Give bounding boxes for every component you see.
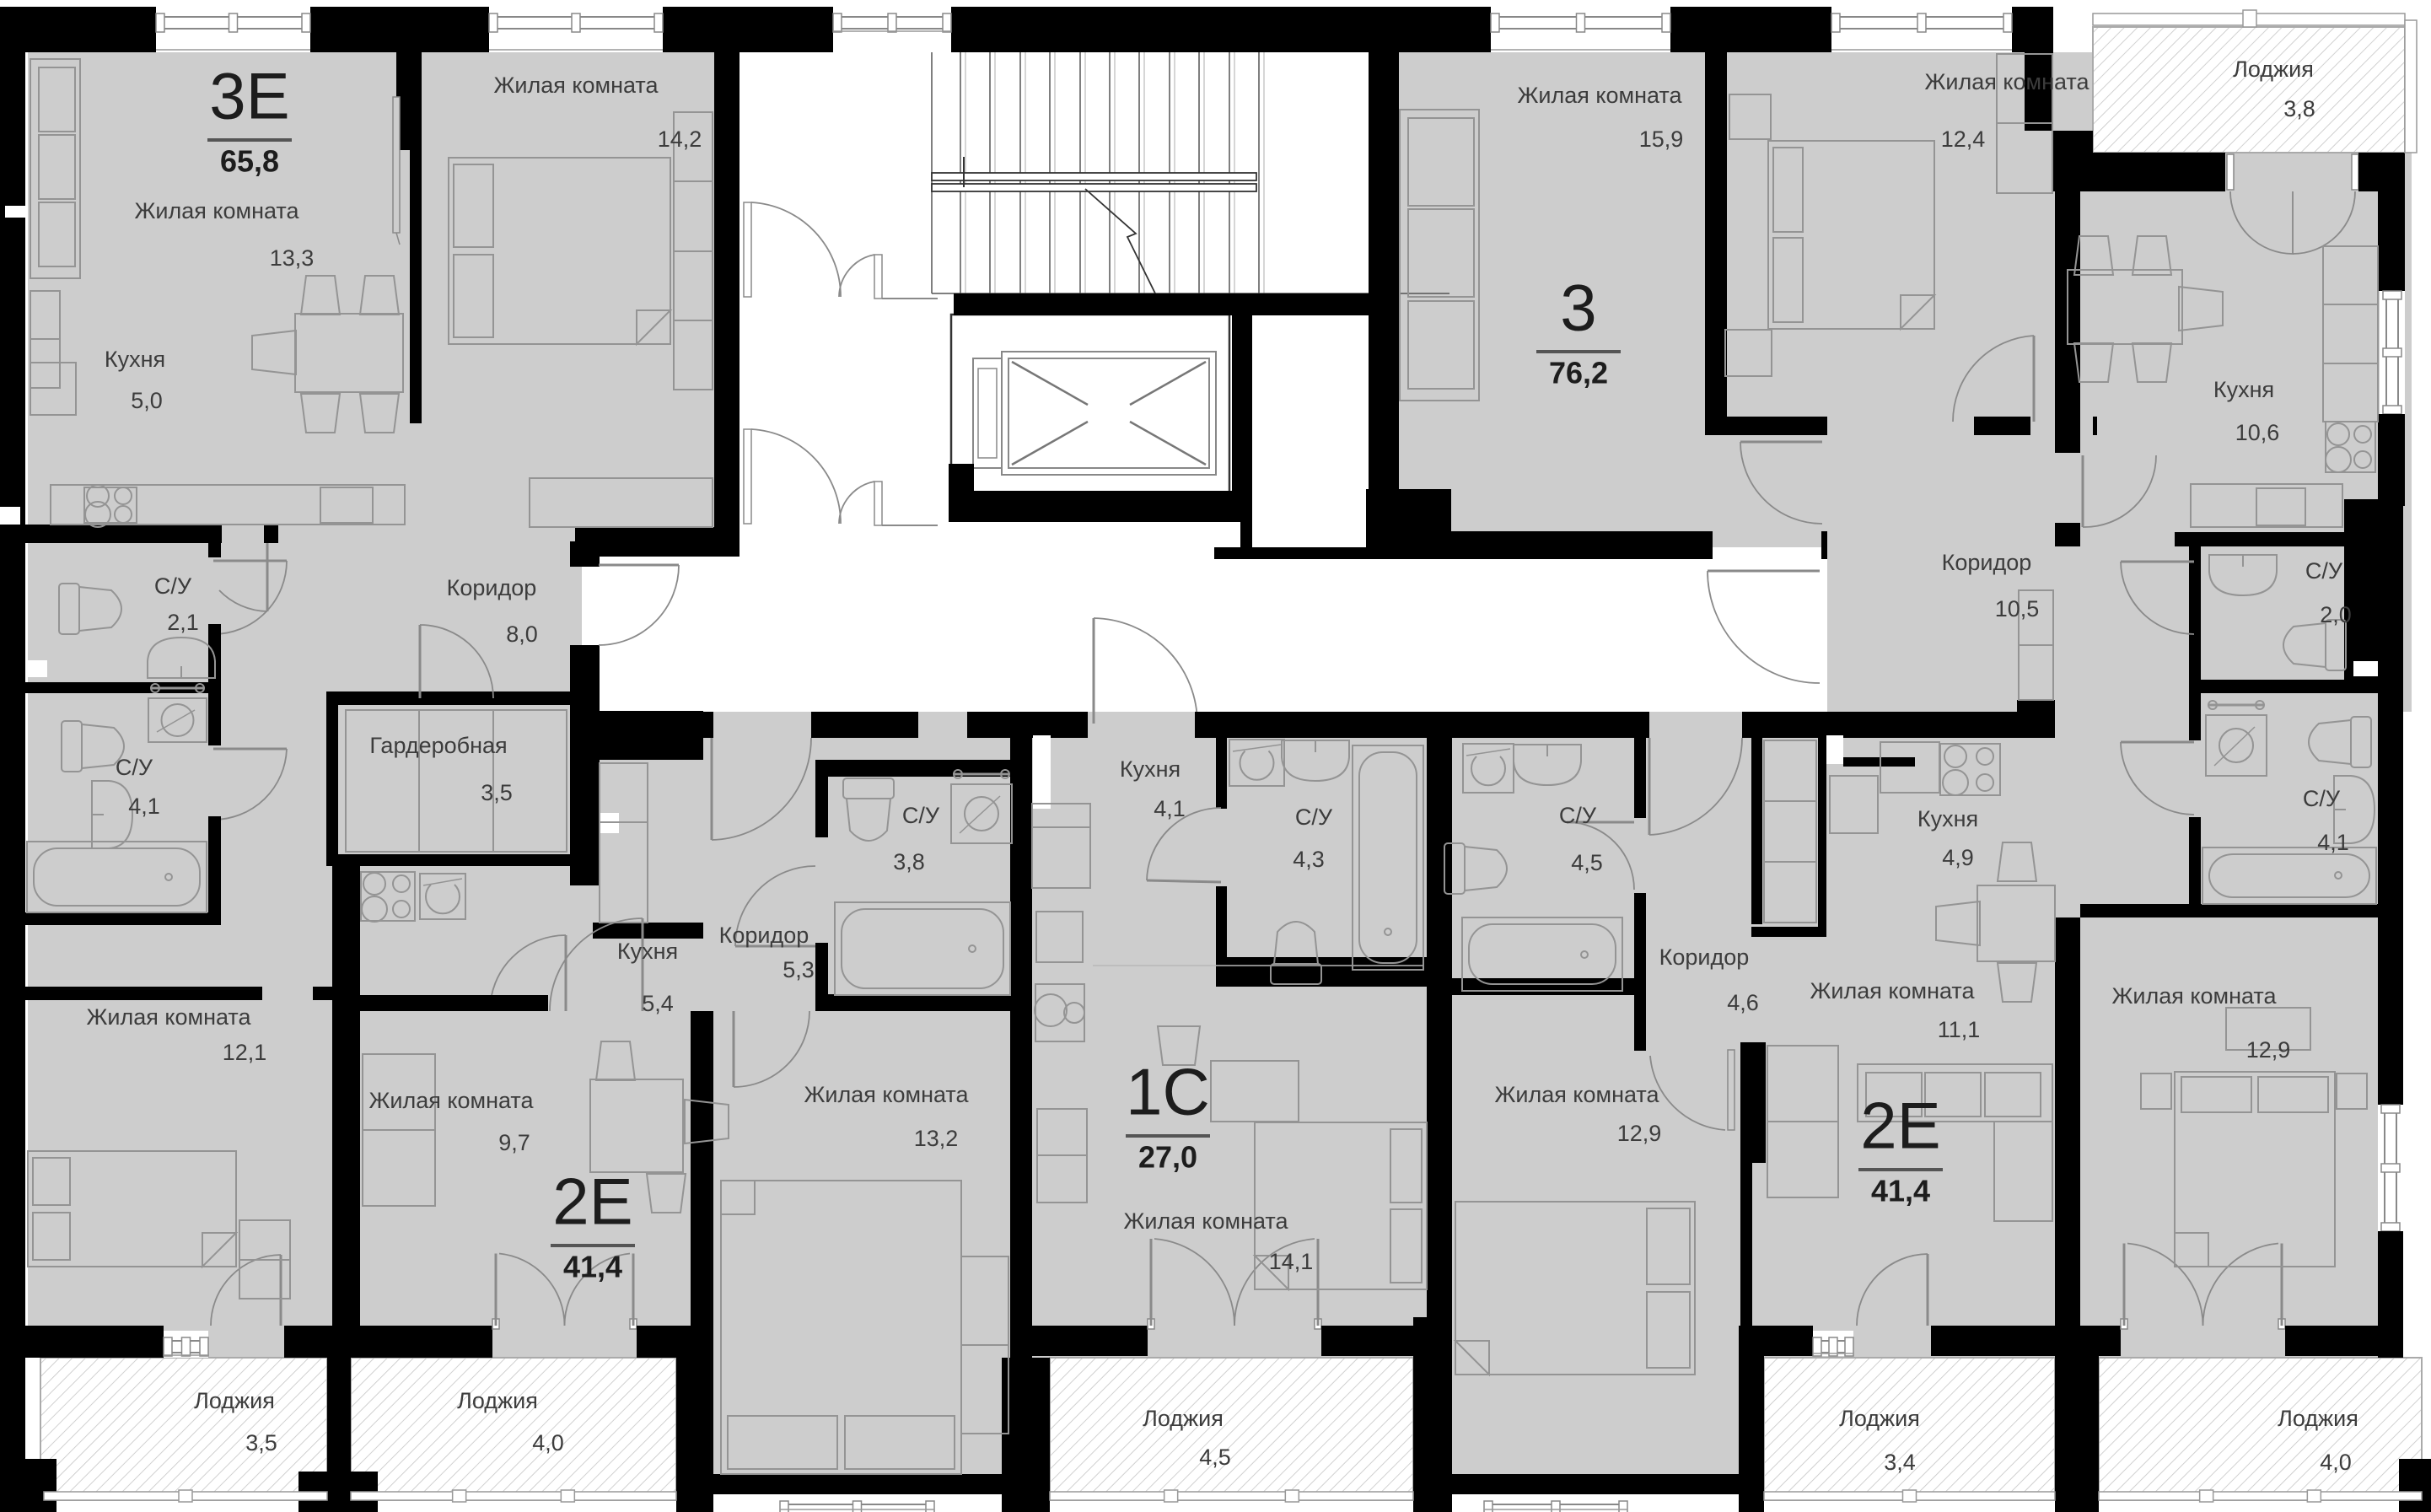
svg-text:С/У: С/У (2305, 558, 2343, 584)
svg-text:41,4: 41,4 (563, 1250, 622, 1284)
svg-text:Жилая комната: Жилая комната (1123, 1208, 1288, 1234)
svg-text:Лоджия: Лоджия (2278, 1406, 2358, 1431)
svg-text:15,9: 15,9 (1639, 126, 1684, 152)
svg-text:10,6: 10,6 (2235, 420, 2280, 445)
svg-text:3,4: 3,4 (1884, 1450, 1916, 1475)
svg-text:Лоджия: Лоджия (1839, 1406, 1920, 1431)
svg-text:1С: 1С (1126, 1055, 1210, 1129)
svg-text:5,0: 5,0 (131, 388, 163, 413)
svg-text:Кухня: Кухня (2213, 377, 2274, 402)
svg-text:Кухня: Кухня (1917, 806, 1978, 831)
svg-text:Гардеробная: Гардеробная (369, 733, 507, 758)
svg-text:Коридор: Коридор (447, 575, 537, 600)
svg-text:27,0: 27,0 (1138, 1140, 1197, 1175)
svg-text:Кухня: Кухня (617, 939, 678, 964)
svg-text:4,1: 4,1 (1154, 796, 1186, 821)
svg-text:13,2: 13,2 (914, 1126, 959, 1151)
svg-text:4,1: 4,1 (128, 794, 160, 819)
svg-text:41,4: 41,4 (1871, 1174, 1930, 1208)
svg-text:Жилая комната: Жилая комната (86, 1004, 251, 1030)
svg-text:12,4: 12,4 (1941, 126, 1986, 152)
svg-text:4,6: 4,6 (1727, 990, 1759, 1015)
svg-text:Коридор: Коридор (1942, 550, 2032, 575)
svg-text:5,4: 5,4 (642, 991, 674, 1016)
svg-text:Коридор: Коридор (719, 923, 809, 948)
svg-text:Кухня: Кухня (105, 347, 165, 372)
svg-text:5,3: 5,3 (783, 957, 815, 982)
svg-text:4,5: 4,5 (1199, 1445, 1231, 1470)
svg-text:С/У: С/У (116, 755, 153, 780)
svg-text:3,5: 3,5 (245, 1430, 277, 1456)
svg-text:С/У: С/У (1295, 804, 1333, 830)
svg-text:Лоджия: Лоджия (457, 1388, 538, 1413)
svg-text:С/У: С/У (154, 573, 192, 599)
svg-text:3: 3 (1560, 271, 1596, 345)
svg-text:4,9: 4,9 (1942, 845, 1974, 870)
svg-text:Кухня: Кухня (1120, 756, 1181, 782)
svg-text:Жилая комната: Жилая комната (493, 73, 659, 98)
svg-text:8,0: 8,0 (506, 621, 538, 647)
svg-text:9,7: 9,7 (498, 1130, 530, 1155)
svg-text:Жилая комната: Жилая комната (134, 198, 299, 223)
svg-text:С/У: С/У (2303, 786, 2341, 811)
svg-text:76,2: 76,2 (1549, 356, 1608, 390)
svg-text:2Е: 2Е (552, 1165, 632, 1239)
svg-text:3Е: 3Е (209, 59, 289, 133)
svg-text:4,0: 4,0 (532, 1430, 564, 1456)
svg-text:4,3: 4,3 (1293, 847, 1325, 872)
svg-text:12,1: 12,1 (223, 1040, 267, 1065)
svg-text:Лоджия: Лоджия (194, 1388, 275, 1413)
svg-text:3,5: 3,5 (481, 780, 513, 805)
svg-text:2,0: 2,0 (2320, 602, 2352, 627)
svg-text:4,0: 4,0 (2320, 1450, 2352, 1475)
svg-text:Жилая комната: Жилая комната (368, 1088, 534, 1113)
svg-text:Жилая комната: Жилая комната (1517, 83, 1682, 108)
svg-text:65,8: 65,8 (220, 144, 279, 179)
svg-text:11,1: 11,1 (1938, 1017, 1981, 1042)
svg-text:Жилая комната: Жилая комната (1924, 69, 2089, 94)
svg-text:Жилая комната: Жилая комната (2111, 983, 2277, 1009)
svg-text:С/У: С/У (1559, 803, 1597, 828)
svg-text:14,1: 14,1 (1269, 1249, 1314, 1274)
svg-text:14,2: 14,2 (658, 126, 702, 152)
svg-text:С/У: С/У (902, 803, 940, 828)
svg-text:Лоджия: Лоджия (2233, 56, 2314, 82)
svg-text:3,8: 3,8 (893, 849, 925, 874)
svg-text:3,8: 3,8 (2283, 96, 2315, 121)
svg-text:Жилая комната: Жилая комната (1494, 1082, 1659, 1107)
svg-text:Лоджия: Лоджия (1143, 1406, 1224, 1431)
svg-text:2,1: 2,1 (167, 610, 199, 635)
svg-text:Жилая комната: Жилая комната (1810, 978, 1975, 1004)
svg-text:12,9: 12,9 (1617, 1121, 1662, 1146)
svg-text:Коридор: Коридор (1659, 944, 1750, 970)
svg-text:13,3: 13,3 (270, 245, 315, 271)
svg-text:10,5: 10,5 (1995, 596, 2040, 621)
svg-text:Жилая комната: Жилая комната (804, 1082, 969, 1107)
svg-text:12,9: 12,9 (2246, 1037, 2291, 1063)
svg-text:4,5: 4,5 (1571, 850, 1603, 875)
svg-text:2Е: 2Е (1860, 1089, 1940, 1163)
svg-text:4,1: 4,1 (2317, 830, 2349, 855)
